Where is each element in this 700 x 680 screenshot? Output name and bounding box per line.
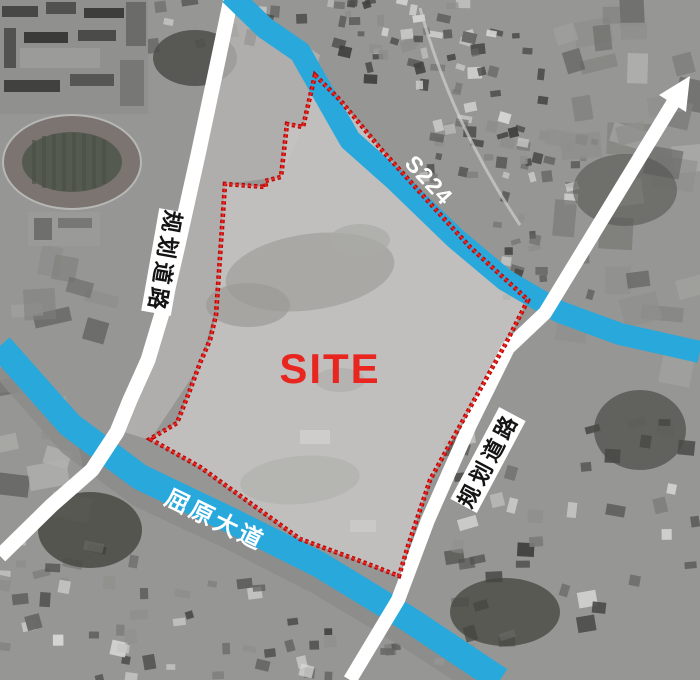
texture-patch: [116, 625, 124, 636]
texture-patch: [140, 588, 148, 599]
building: [46, 2, 76, 14]
texture-patch: [0, 642, 11, 651]
site-label: SITE: [279, 345, 380, 392]
texture-patch: [173, 617, 187, 626]
texture-patch: [592, 601, 607, 613]
texture-patch: [212, 671, 224, 679]
texture-patch: [567, 502, 578, 518]
texture-patch: [512, 33, 520, 39]
texture-patch: [349, 17, 360, 25]
texture-patch: [628, 574, 641, 586]
bright-spot: [300, 430, 330, 444]
texture-patch: [527, 509, 543, 523]
texture-patch: [16, 560, 26, 567]
building: [4, 80, 60, 92]
texture-patch: [690, 516, 700, 528]
texture-patch: [626, 270, 651, 288]
texture-patch: [529, 536, 543, 547]
texture-patch: [89, 632, 99, 639]
building: [70, 74, 114, 86]
texture-patch: [324, 635, 337, 648]
texture-patch: [505, 247, 513, 255]
texture-patch: [23, 288, 56, 321]
texture-patch: [39, 592, 51, 607]
texture-patch: [53, 635, 64, 646]
texture-patch: [466, 172, 478, 178]
texture-patch: [0, 472, 30, 498]
building: [78, 30, 116, 41]
texture-patch: [324, 628, 332, 635]
texture-patch: [378, 50, 388, 60]
texture-patch: [364, 74, 378, 84]
texture-patch: [57, 580, 70, 595]
texture-patch: [236, 578, 252, 590]
building: [2, 6, 38, 17]
texture-patch: [103, 576, 116, 590]
school-campus: [0, 0, 148, 114]
texture-patch: [380, 648, 394, 655]
pond-patch: [330, 224, 390, 256]
texture-patch: [496, 156, 508, 168]
texture-patch: [296, 14, 307, 24]
texture-patch: [400, 28, 413, 39]
texture-patch: [444, 123, 456, 135]
texture-patch: [535, 267, 547, 275]
texture-patch: [627, 53, 648, 84]
texture-patch: [124, 629, 138, 645]
building: [34, 218, 52, 240]
texture-patch: [12, 593, 29, 605]
texture-patch: [446, 2, 459, 9]
texture-patch: [443, 29, 453, 39]
texture-patch: [602, 7, 620, 24]
texture-patch: [309, 641, 319, 650]
texture-patch: [130, 610, 148, 621]
vegetation-patch: [594, 390, 686, 470]
building: [84, 8, 124, 18]
texture-patch: [662, 529, 672, 540]
texture-patch: [539, 275, 547, 283]
texture-patch: [154, 1, 167, 14]
texture-patch: [580, 462, 591, 472]
texture-patch: [576, 615, 597, 634]
site-location-map: S224 屈原大道 规划道路 规划道路 SITE: [0, 0, 700, 680]
texture-patch: [345, 11, 352, 17]
texture-patch: [485, 120, 498, 133]
vegetation-patch: [450, 578, 560, 646]
building: [58, 218, 92, 228]
texture-patch: [287, 618, 298, 626]
texture-patch: [253, 584, 266, 592]
building: [120, 60, 144, 106]
texture-patch: [45, 563, 60, 572]
texture-patch: [541, 170, 553, 182]
texture-patch: [324, 672, 332, 680]
texture-patch: [264, 648, 276, 658]
texture-patch: [520, 156, 528, 164]
texture-patch: [142, 654, 156, 671]
texture-patch: [416, 81, 423, 90]
texture-patch: [571, 161, 580, 168]
texture-patch: [666, 483, 677, 495]
texture-patch: [222, 643, 230, 655]
texture-patch: [451, 539, 464, 554]
building: [4, 28, 16, 68]
texture-patch: [166, 664, 175, 670]
texture-patch: [537, 96, 548, 105]
map-canvas: S224 屈原大道 规划道路 规划道路 SITE: [0, 0, 700, 680]
texture-patch: [684, 561, 697, 569]
texture-patch: [413, 36, 423, 43]
texture-patch: [377, 15, 384, 27]
texture-patch: [358, 31, 365, 36]
texture-patch: [516, 561, 530, 568]
texture-patch: [334, 1, 345, 9]
texture-patch: [484, 154, 493, 161]
texture-patch: [571, 95, 593, 122]
texture-patch: [349, 0, 358, 7]
texture-patch: [621, 23, 647, 40]
texture-patch: [327, 0, 334, 8]
texture-patch: [552, 199, 577, 237]
texture-patch: [592, 24, 612, 51]
texture-patch: [537, 68, 545, 80]
bright-spot: [350, 520, 376, 532]
building: [24, 32, 68, 43]
building: [126, 2, 146, 46]
texture-patch: [522, 48, 532, 55]
courtyard: [20, 48, 100, 68]
